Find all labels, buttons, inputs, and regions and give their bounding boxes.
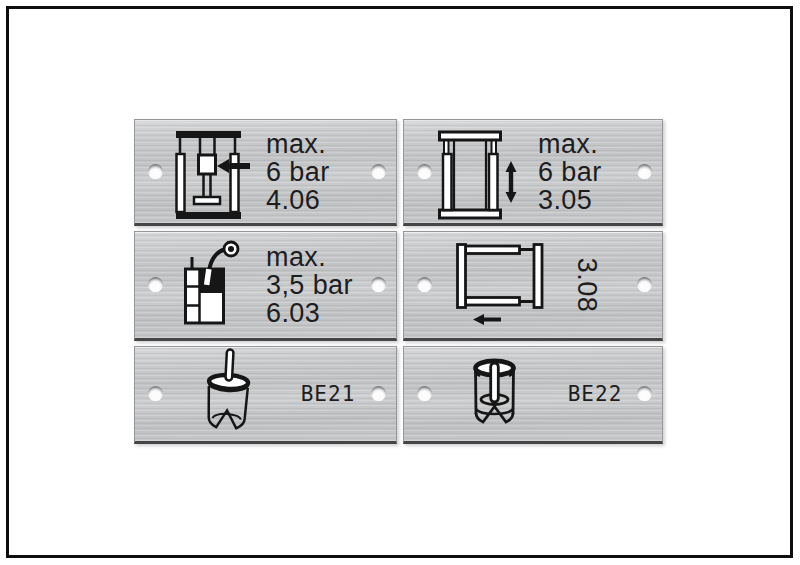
plate-6-03: max. 3,5 bar 6.03: [134, 231, 397, 341]
plate-text-line: max.: [266, 243, 353, 271]
mounting-hole-right: [371, 386, 386, 401]
mounting-hole-right: [637, 386, 652, 401]
plate-text-line: max.: [266, 130, 330, 158]
frame-horizontal-arrow-icon: [456, 243, 544, 327]
sleeve-slot-cylinder-icon: [469, 353, 521, 437]
mounting-hole-right: [371, 164, 386, 179]
plate-text-line: 6 bar: [538, 158, 602, 186]
plate-4-06: max. 6 bar 4.06: [134, 119, 397, 226]
mounting-hole-right: [637, 277, 652, 292]
plate-text-line: 6 bar: [266, 158, 330, 186]
plate-text: max. 3,5 bar 6.03: [266, 243, 353, 327]
mounting-hole-left: [417, 386, 432, 401]
plate-text: max. 6 bar 3.05: [538, 130, 602, 214]
mounting-hole-right: [637, 164, 652, 179]
press-ram-arrow-icon: [173, 130, 253, 220]
mounting-hole-right: [371, 277, 386, 292]
frame-vertical-arrow-icon: [438, 130, 522, 220]
plate-text-line: 3.05: [538, 186, 602, 214]
plate-text-line: max.: [538, 130, 602, 158]
plate-3-05: max. 6 bar 3.05: [403, 119, 663, 226]
plate-code: BE21: [301, 382, 356, 406]
metal-label-plates-photo: max. 6 bar 4.06: [0, 0, 800, 565]
mounting-hole-left: [148, 164, 163, 179]
plate-3-08: 3.08: [403, 231, 663, 341]
pressure-tank-spray-gun-icon: [184, 240, 240, 326]
plate-text-line: 4.06: [266, 186, 330, 214]
plate-text-line: 3,5 bar: [266, 271, 353, 299]
plate-be21: BE21: [134, 346, 397, 444]
mounting-hole-left: [417, 277, 432, 292]
plate-code: BE22: [568, 382, 623, 406]
image-border-frame: [6, 6, 793, 558]
mounting-hole-left: [417, 164, 432, 179]
cylinder-pin-icon: [204, 348, 254, 438]
plate-code-rotated: 3.08: [571, 258, 602, 313]
plate-text-line: 6.03: [266, 299, 353, 327]
mounting-hole-left: [148, 386, 163, 401]
plate-text: max. 6 bar 4.06: [266, 130, 330, 214]
mounting-hole-left: [148, 277, 163, 292]
plate-be22: BE22: [403, 346, 663, 444]
